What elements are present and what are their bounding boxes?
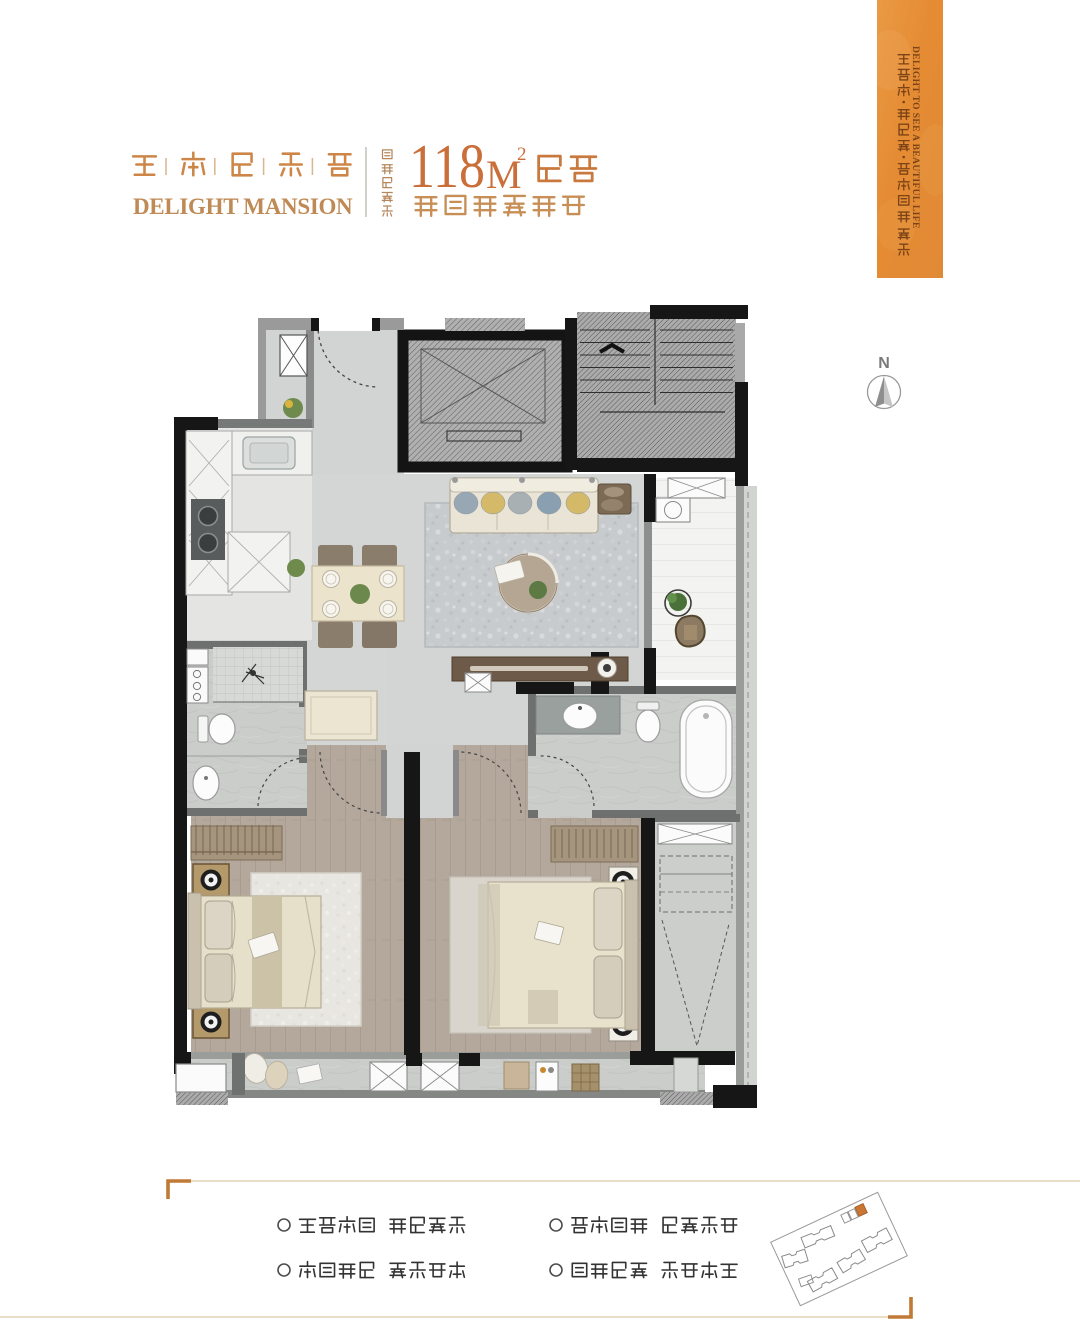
svg-text:DELIGHT TO SEE A BEAUTIFUL LIF: DELIGHT TO SEE A BEAUTIFUL LIFE (910, 46, 920, 229)
svg-text:DELIGHT MANSION: DELIGHT MANSION (133, 194, 353, 219)
svg-text:2: 2 (517, 144, 527, 165)
svg-text:118: 118 (409, 133, 485, 201)
svg-text:N: N (878, 355, 890, 372)
